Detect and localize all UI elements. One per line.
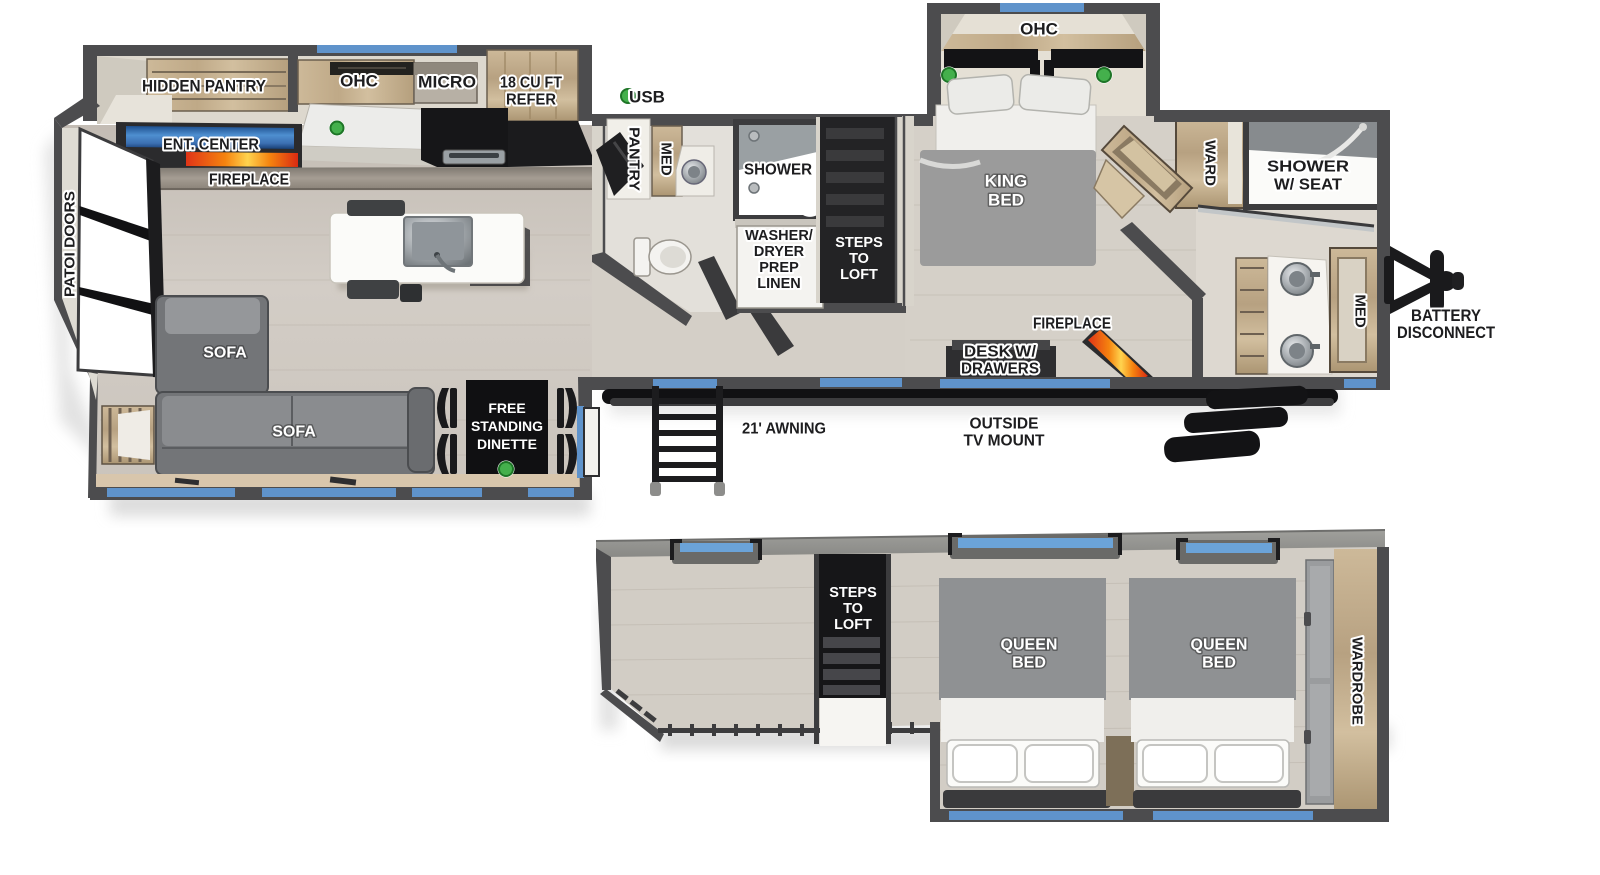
svg-text:LINEN: LINEN xyxy=(757,276,801,292)
svg-text:LOFT: LOFT xyxy=(840,267,878,283)
svg-text:WARD: WARD xyxy=(1202,140,1219,186)
svg-text:STANDING: STANDING xyxy=(471,418,543,434)
svg-text:SOFA: SOFA xyxy=(272,424,316,441)
svg-text:BATTERY: BATTERY xyxy=(1411,307,1481,325)
svg-text:QUEEN: QUEEN xyxy=(1001,637,1058,654)
svg-text:SHOWER: SHOWER xyxy=(744,162,812,179)
svg-text:DINETTE: DINETTE xyxy=(477,436,537,452)
svg-text:QUEEN: QUEEN xyxy=(1191,637,1248,654)
svg-text:PREP: PREP xyxy=(759,260,799,276)
svg-text:STEPS: STEPS xyxy=(829,585,877,601)
svg-text:W/ SEAT: W/ SEAT xyxy=(1274,177,1343,194)
svg-text:LOFT: LOFT xyxy=(834,617,872,633)
svg-text:REFER: REFER xyxy=(506,92,556,109)
svg-text:BED: BED xyxy=(1202,655,1236,672)
svg-text:MICRO: MICRO xyxy=(418,73,476,92)
svg-text:MED: MED xyxy=(658,142,675,176)
svg-text:OHC: OHC xyxy=(340,72,378,91)
svg-text:TV MOUNT: TV MOUNT xyxy=(964,433,1045,450)
svg-text:FIREPLACE: FIREPLACE xyxy=(1033,316,1111,333)
svg-text:PANTRY: PANTRY xyxy=(626,127,643,191)
svg-text:TO: TO xyxy=(843,601,863,617)
svg-text:MED: MED xyxy=(1352,294,1369,328)
svg-text:BED: BED xyxy=(988,191,1024,210)
svg-text:DISCONNECT: DISCONNECT xyxy=(1397,324,1495,342)
svg-text:DESK W/: DESK W/ xyxy=(964,344,1037,361)
svg-text:OUTSIDE: OUTSIDE xyxy=(970,416,1039,433)
svg-text:FREE: FREE xyxy=(488,400,525,416)
svg-text:OHC: OHC xyxy=(1020,20,1058,39)
svg-text:SOFA: SOFA xyxy=(203,345,247,362)
svg-text:DRAWERS: DRAWERS xyxy=(961,361,1039,378)
svg-text:BED: BED xyxy=(1012,655,1046,672)
svg-text:WARDROBE: WARDROBE xyxy=(1349,637,1366,725)
svg-text:USB: USB xyxy=(629,88,665,107)
svg-text:STEPS: STEPS xyxy=(835,235,883,251)
svg-text:TO: TO xyxy=(849,251,869,267)
svg-text:SHOWER: SHOWER xyxy=(1267,159,1349,176)
svg-text:HIDDEN PANTRY: HIDDEN PANTRY xyxy=(142,77,267,96)
svg-text:18 CU FT: 18 CU FT xyxy=(500,75,562,92)
svg-text:KING: KING xyxy=(985,172,1028,191)
svg-text:PATOI DOORS: PATOI DOORS xyxy=(62,191,79,297)
svg-text:DRYER: DRYER xyxy=(754,244,805,260)
svg-text:ENT. CENTER: ENT. CENTER xyxy=(163,137,259,154)
svg-text:WASHER/: WASHER/ xyxy=(745,228,813,244)
svg-text:21' AWNING: 21' AWNING xyxy=(742,421,826,438)
svg-text:FIREPLACE: FIREPLACE xyxy=(209,172,289,189)
